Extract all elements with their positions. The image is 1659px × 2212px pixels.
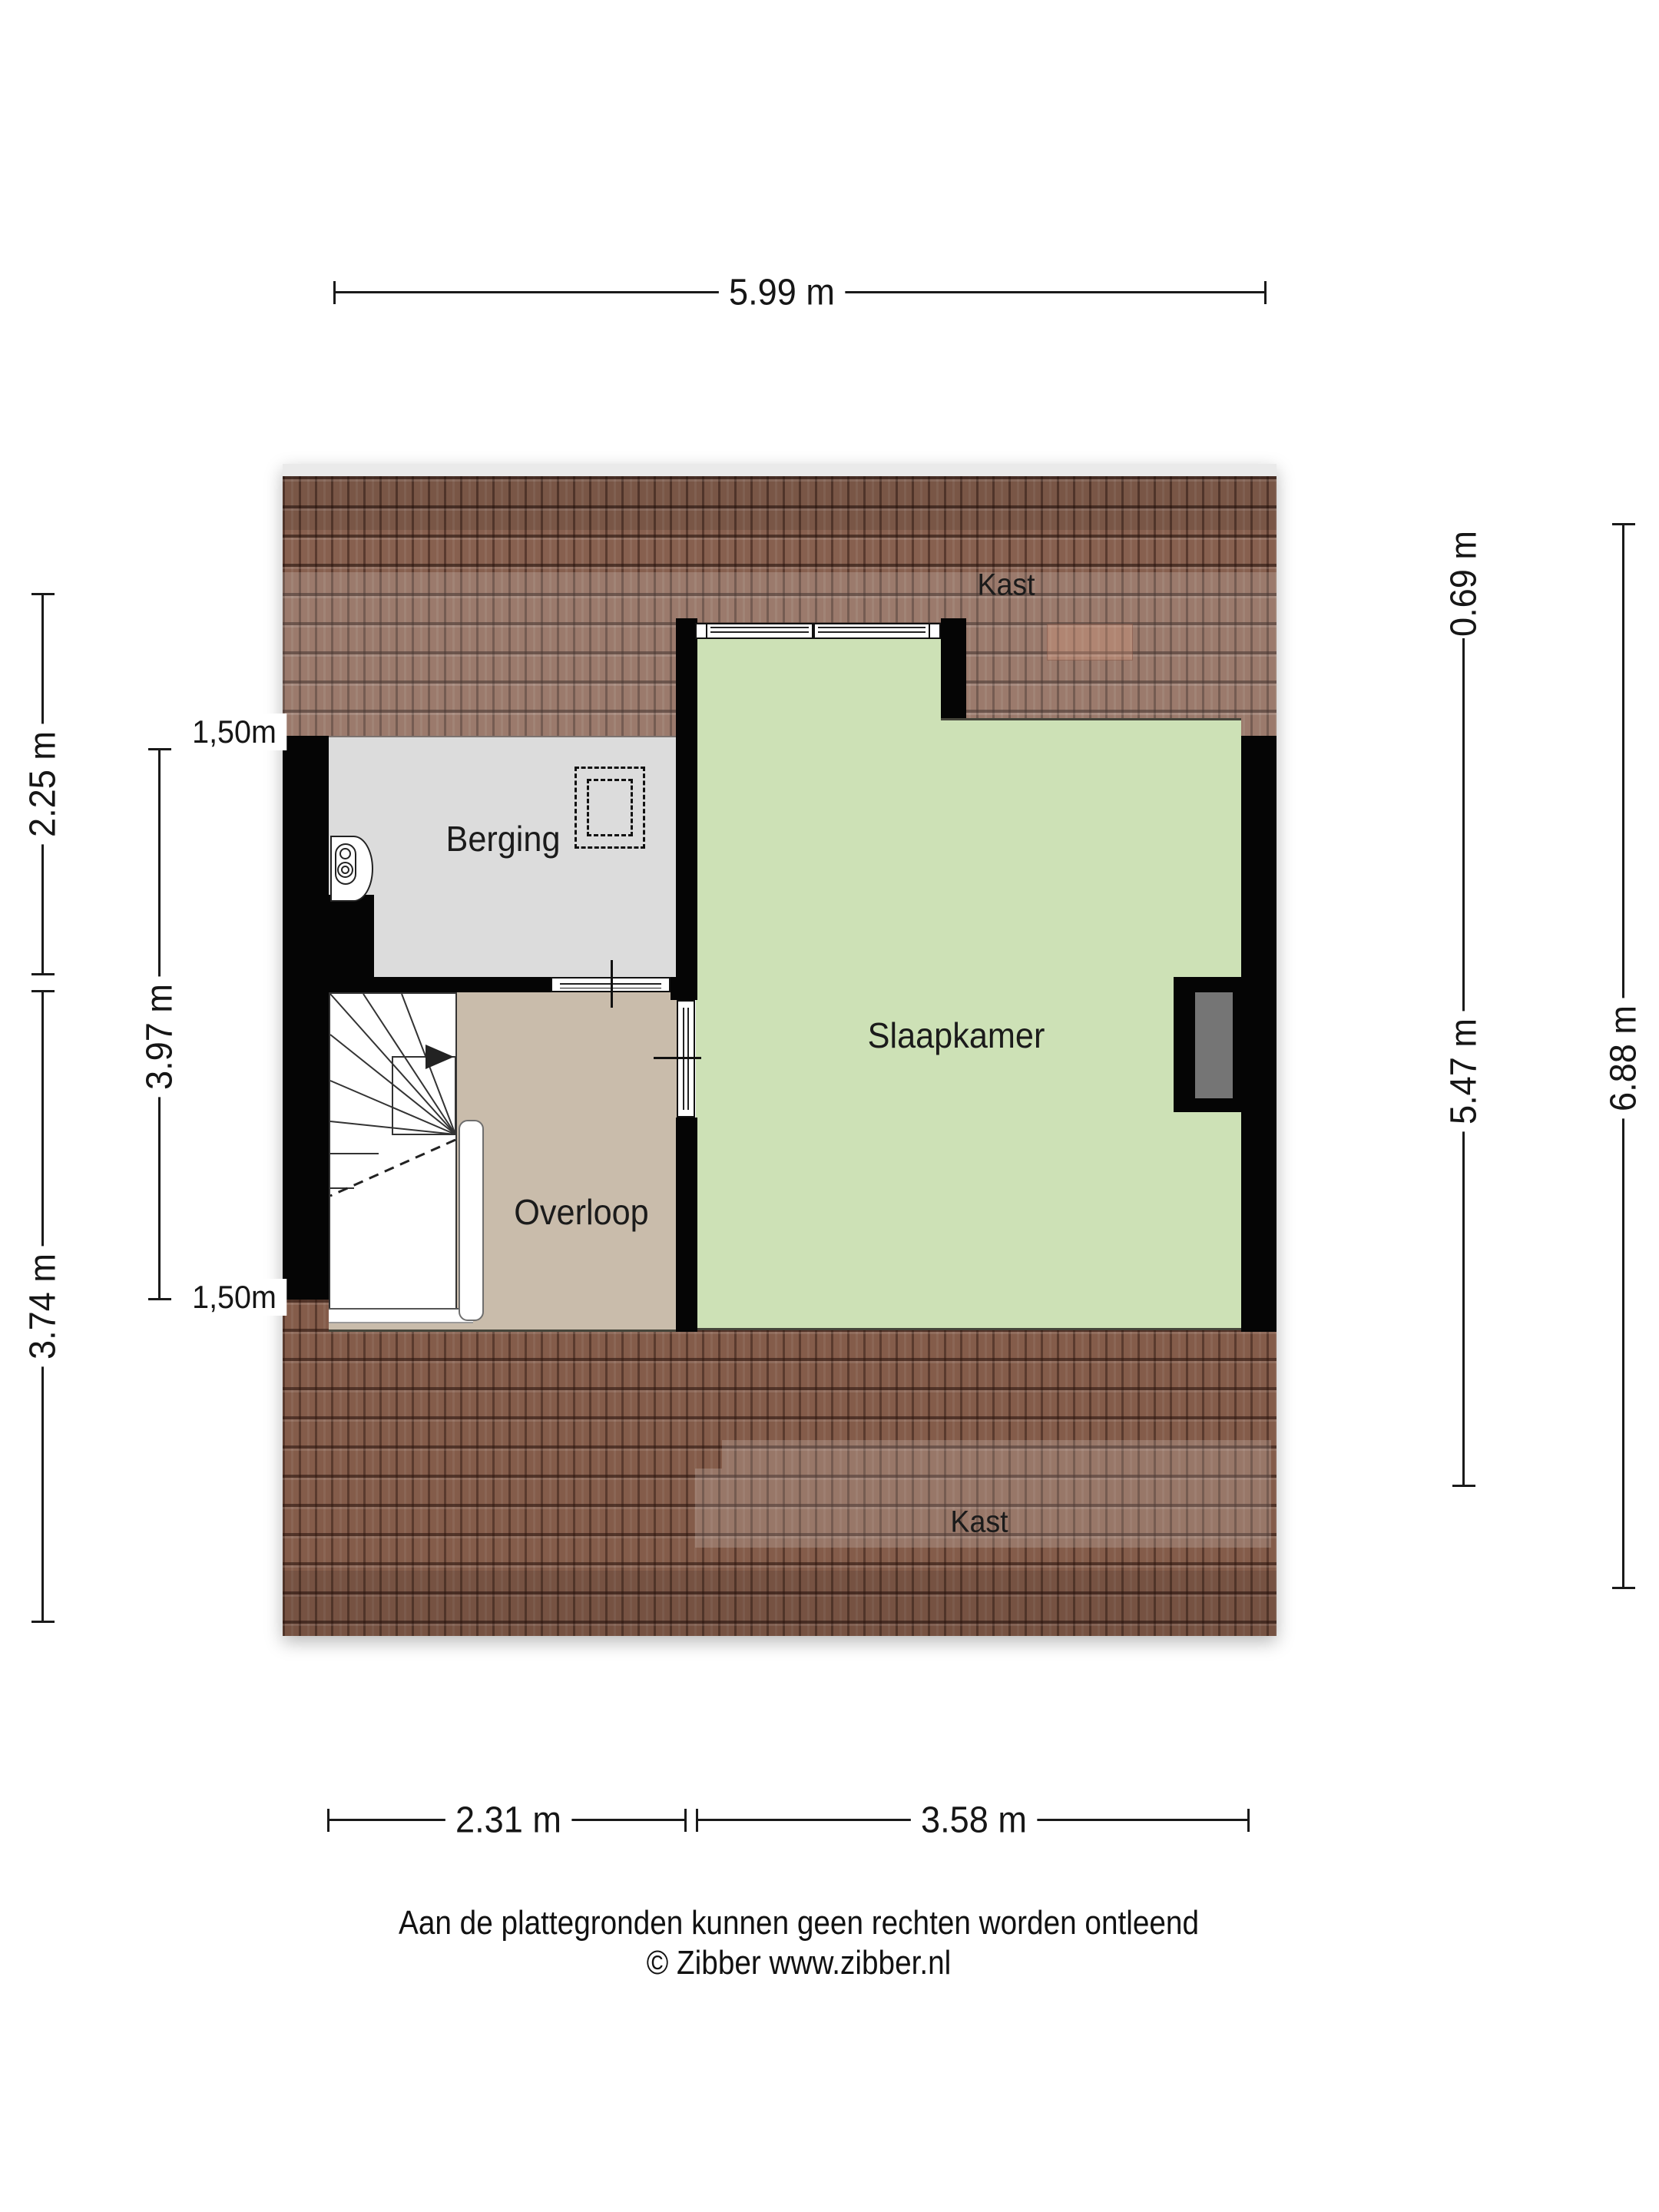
room-slaapkamer-upper	[696, 639, 941, 1330]
dim-bottom-left-tick-left	[327, 1809, 329, 1832]
wall-berging-slaapkamer	[676, 618, 697, 977]
wall-corner-piece	[671, 977, 697, 1000]
dim-right-outer-tick-bottom	[1612, 1587, 1635, 1589]
room-label-kast-bottom: Kast	[950, 1505, 1008, 1540]
dim-left-upper-tick-bottom	[31, 973, 55, 975]
dim-left-upper-tick-top	[31, 593, 55, 595]
room-label-kast-top: Kast	[977, 568, 1035, 603]
window-berging-overloop-pivot	[611, 960, 613, 1008]
dim-left-lower-tick-top	[31, 990, 55, 992]
footer-copyright: © Zibber www.zibber.nl	[647, 1944, 952, 1982]
roof-skylight	[1047, 624, 1133, 661]
dim-left-upper-label: 2.25 m	[22, 724, 65, 845]
dim-right-lower-tick-bottom	[1452, 1485, 1475, 1487]
dim-left-inner-tick-bottom	[148, 1298, 171, 1300]
dim-top-width-tick-right	[1264, 281, 1267, 304]
window-top-mullion	[812, 624, 815, 637]
dormer-panel	[1195, 992, 1233, 1098]
window-top-pane-left	[710, 627, 809, 635]
roof-bottom-kast-shade-step	[695, 1469, 722, 1548]
dim-bottom-right-label: 3.58 m	[911, 1800, 1037, 1842]
room-label-overloop: Overloop	[514, 1191, 648, 1233]
dim-bottom-left-tick-right	[684, 1809, 687, 1832]
floorplan-page: Berging Slaapkamer Overloop Kast Kast 5.…	[0, 0, 1659, 2212]
dim-bottom-right-tick-right	[1247, 1809, 1250, 1832]
dim-right-lower-label: 5.47 m	[1443, 1012, 1485, 1132]
stairs-treads	[329, 992, 457, 1312]
stairs-landing-strip	[329, 1308, 473, 1323]
vent-shaft-dashed-inner	[587, 779, 633, 836]
footer-disclaimer: Aan de plattegronden kunnen geen rechten…	[399, 1904, 1199, 1942]
window-top-pane-right	[818, 627, 926, 635]
dim-top-width-label: 5.99 m	[719, 272, 845, 314]
mv-unit-dial-top	[339, 848, 351, 859]
wall-left	[283, 736, 329, 1300]
dim-left-inner-tick-top	[148, 748, 171, 750]
dim-left-lower-tick-bottom	[31, 1621, 55, 1623]
wall-overloop-slaapkamer-lower	[676, 1118, 697, 1332]
window-top-end-right	[929, 624, 930, 637]
dim-left-inner-label: 3.97 m	[139, 977, 181, 1098]
roof-top-shade	[283, 476, 1277, 530]
dim-left-lower-label: 3.74 m	[22, 1247, 65, 1367]
stairs-direction-arrow-icon	[426, 1045, 454, 1069]
window-top	[695, 623, 941, 639]
window-overloop-slaapkamer-pivot	[654, 1057, 701, 1059]
dim-top-width-tick-left	[333, 281, 336, 304]
mv-unit-dial-bottom-inner	[341, 866, 349, 874]
wall-kast-notch	[941, 618, 966, 718]
dim-right-upper-label: 0.69 m	[1443, 524, 1485, 644]
dim-headroom-bottom-label: 1,50m	[182, 1279, 286, 1316]
stairs-balustrade	[459, 1120, 484, 1321]
dim-right-outer-tick-top	[1612, 523, 1635, 525]
dim-bottom-left-label: 2.31 m	[445, 1800, 571, 1842]
room-label-berging: Berging	[445, 818, 560, 859]
slaapkamer-bottom-edge	[696, 1328, 1241, 1330]
wall-berging-bottom	[283, 977, 551, 992]
dim-bottom-right-tick-left	[696, 1809, 698, 1832]
dim-headroom-top-label: 1,50m	[182, 714, 286, 750]
room-label-slaapkamer: Slaapkamer	[868, 1015, 1045, 1056]
roof-bottom-eaves-shade	[283, 1571, 1277, 1636]
dim-right-outer-label: 6.88 m	[1603, 998, 1645, 1119]
window-top-end-left	[706, 624, 707, 637]
